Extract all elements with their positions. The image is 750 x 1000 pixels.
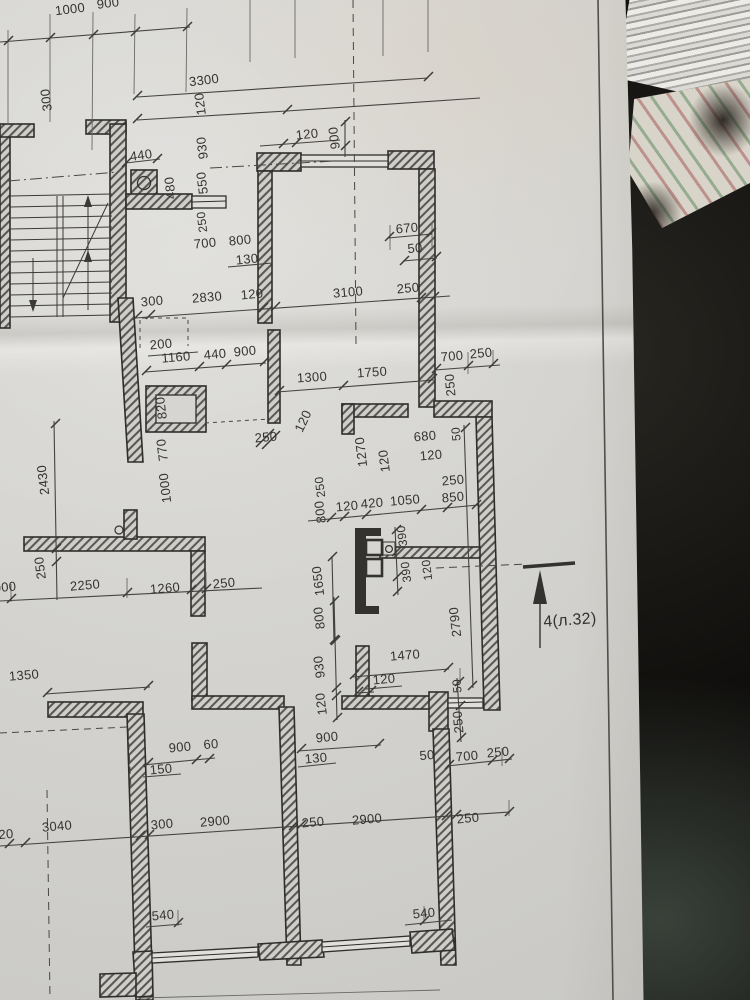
dimension-label: 250 <box>195 211 209 233</box>
dimension-label: 50 <box>450 679 463 694</box>
dimension-label: 300 <box>38 88 54 112</box>
dimension-label: 250 <box>451 710 466 734</box>
dimension-label: 120 <box>376 449 392 473</box>
dimension-label: 120 <box>420 559 434 581</box>
dimension-label: 250 <box>456 811 480 826</box>
dimension-label: 250 <box>212 576 236 591</box>
dimension-label: 670 <box>395 221 419 236</box>
dimension-label: 2790 <box>447 606 464 637</box>
dimension-label: 1470 <box>389 647 420 663</box>
dimension-label: 3300 <box>188 72 219 89</box>
dimension-label: 2250 <box>69 577 100 593</box>
dimension-label: 800 <box>311 606 327 630</box>
dimension-label: 50 <box>449 427 462 442</box>
dimension-label: 820 <box>153 396 169 420</box>
dimension-label: 900 <box>168 740 192 755</box>
dimension-label: 480 <box>162 176 178 200</box>
dimension-label: 2900 <box>199 813 230 829</box>
dimension-label: 550 <box>194 171 210 195</box>
dimension-label: 250 <box>313 476 327 498</box>
dimension-label: 700 <box>193 235 217 250</box>
dimension-label: 250 <box>396 281 420 296</box>
dimension-label: 120 <box>313 692 329 716</box>
dimension-labels: 1000900300330012012090044093048055025070… <box>0 0 750 1000</box>
dimension-label: 120 <box>240 287 264 302</box>
dimension-label: 130 <box>235 251 259 266</box>
dimension-label: 850 <box>441 490 465 505</box>
dimension-label: 20 <box>0 827 14 841</box>
dimension-label: 900 <box>233 344 257 359</box>
dimension-label: 150 <box>149 762 173 777</box>
dimension-label: 120 <box>192 92 208 116</box>
dimension-label: 250 <box>486 745 510 760</box>
dimension-label: 120 <box>292 408 313 434</box>
dimension-label: 930 <box>311 655 327 679</box>
dimension-label: 390 <box>395 525 409 547</box>
photo-of-floorplan: 1000900300330012012090044093048055025070… <box>0 0 750 1000</box>
dimension-label: 300 <box>140 294 164 309</box>
dimension-label: 50 <box>407 241 423 255</box>
dimension-label: 3100 <box>332 284 363 300</box>
dimension-label: 250 <box>301 815 325 830</box>
dimension-label: 1300 <box>297 369 328 384</box>
dimension-label: 250 <box>441 473 465 488</box>
dimension-label: 800 <box>228 232 252 247</box>
dimension-label: 250 <box>443 373 458 397</box>
dimension-label: 1270 <box>353 436 370 467</box>
dimension-label: 390 <box>399 561 413 583</box>
dimension-label: 800 <box>312 500 328 524</box>
dimension-label: 1160 <box>161 349 191 364</box>
dimension-label: 2900 <box>351 811 382 827</box>
dimension-label: 1000 <box>157 472 174 503</box>
dimension-label: 900 <box>96 0 120 11</box>
section-marker-label: 4(л.32) <box>543 611 597 631</box>
dimension-label: 930 <box>194 136 210 160</box>
dimension-label: 250 <box>32 556 48 580</box>
dimension-label: 60 <box>203 737 219 751</box>
dimension-label: 900 <box>315 730 339 745</box>
dimension-label: 1050 <box>389 492 420 508</box>
dimension-label: 120 <box>295 126 319 141</box>
dimension-label: 1350 <box>8 667 39 683</box>
dimension-label: 1000 <box>54 1 85 18</box>
dimension-label: 1260 <box>149 580 180 596</box>
dimension-label: 130 <box>304 751 328 766</box>
dimension-label: 3040 <box>41 818 72 834</box>
dimension-label: 1650 <box>310 565 327 596</box>
dimension-label: 540 <box>151 908 175 923</box>
dimension-label: 680 <box>413 429 437 444</box>
dimension-label: 900 <box>326 126 342 150</box>
dimension-label: 440 <box>203 347 227 362</box>
dimension-label: 2430 <box>35 464 52 495</box>
dimension-label: 700 <box>440 349 464 364</box>
dimension-label: 420 <box>360 496 384 511</box>
dimension-label: 000 <box>0 580 17 595</box>
dimension-label: 250 <box>469 346 493 361</box>
dimension-label: 120 <box>372 672 396 687</box>
dimension-label: 540 <box>412 906 436 921</box>
dimension-label: 1750 <box>357 364 388 379</box>
dimension-label: 440 <box>129 147 153 163</box>
dimension-label: 50 <box>419 748 435 762</box>
dimension-label: 120 <box>419 448 443 463</box>
dimension-label: 120 <box>335 499 359 514</box>
dimension-label: 2830 <box>191 289 222 305</box>
dimension-label: 700 <box>455 749 479 764</box>
dimension-label: 250 <box>254 430 278 445</box>
dimension-label: 770 <box>154 438 170 462</box>
dimension-label: 300 <box>150 817 174 832</box>
